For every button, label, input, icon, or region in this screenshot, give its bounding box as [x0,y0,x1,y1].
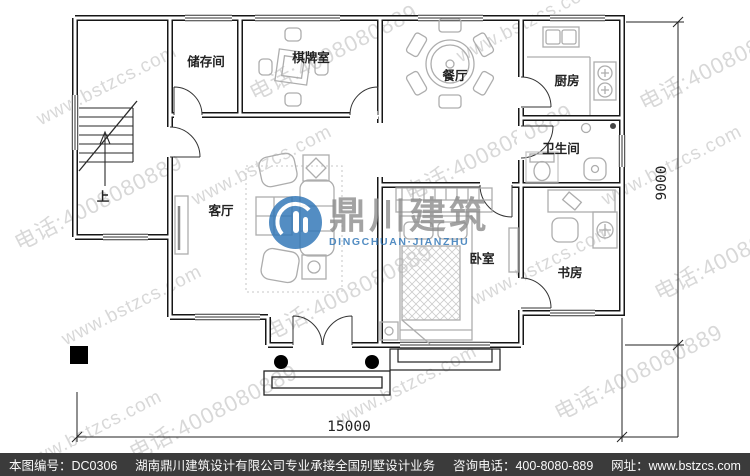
bay-steps [390,349,500,370]
room-label-bedroom: 卧室 [469,251,495,266]
kitchen-sink [543,27,579,47]
game-room-door [350,87,378,115]
room-label-storage: 储存间 [186,54,225,69]
window [550,14,605,22]
shower-head [582,124,591,133]
drawing-number: 本图编号：DC0306 [9,455,117,474]
dimension-height: 9000 [654,166,670,201]
mahjong-table [259,28,328,106]
desk-chair [552,218,578,242]
living-furniture [175,152,342,292]
window [618,135,626,167]
website-url: 网址：www.bstzcs.com [611,455,741,474]
window [103,233,148,241]
floor-drain [610,123,616,129]
bedroom-furniture [380,188,518,344]
kitchen-door [521,77,551,107]
window [418,14,483,22]
bed [400,216,472,344]
room-label-living: 客厅 [207,203,234,218]
rug [246,166,342,292]
floor-plan-drawing: 15000 9000 储存间 棋牌室 餐厅 厨房 卫生间 客厅 卧室 书房 上 [0,0,750,453]
window [550,309,595,317]
stairhall-door [170,127,200,157]
blueprint-page: www.bstzcs.com 电话:4008080889 www.bstzcs.… [0,0,750,476]
window [71,95,79,150]
kitchen-stove [594,62,616,100]
room-label-kitchen: 厨房 [554,73,579,88]
dimension-width: 15000 [327,419,371,435]
coffee-table [256,197,292,235]
shower-basin [584,158,606,180]
consult-phone: 咨询电话：400-8080-889 [453,455,593,474]
study-door [521,278,551,308]
study-desk [548,190,617,248]
armchair [257,152,298,189]
room-label-dining: 餐厅 [441,68,468,83]
window [195,313,260,321]
room-label-study: 书房 [557,265,582,280]
room-label-gameroom: 棋牌室 [291,50,330,65]
sofa [300,180,334,256]
entry-door-right [323,316,352,345]
entry-porch [264,355,390,395]
side-table [303,155,329,181]
stairs-up-label: 上 [97,189,110,204]
bedroom-cabinet [509,228,518,272]
entry-door-left [293,316,322,345]
bay-window [400,341,490,349]
dining-table [405,19,494,108]
tv-cabinet [175,196,188,254]
kitchen-counter [527,27,616,115]
wardrobe [396,188,492,212]
storage-door [174,87,202,115]
column-marker [70,346,88,364]
window [185,14,232,22]
side-table [302,255,326,279]
company-slogan: 湖南鼎川建筑设计有限公司专业承接全国别墅设计业务 [135,455,435,474]
window [255,14,340,22]
porch-column [274,355,288,369]
staircase [79,101,137,186]
armchair [260,247,301,284]
room-label-bathroom: 卫生间 [542,141,580,156]
porch-column [365,355,379,369]
footer-bar: 本图编号：DC0306 湖南鼎川建筑设计有限公司专业承接全国别墅设计业务 咨询电… [0,453,750,476]
stairs-up-arrow [100,132,110,186]
